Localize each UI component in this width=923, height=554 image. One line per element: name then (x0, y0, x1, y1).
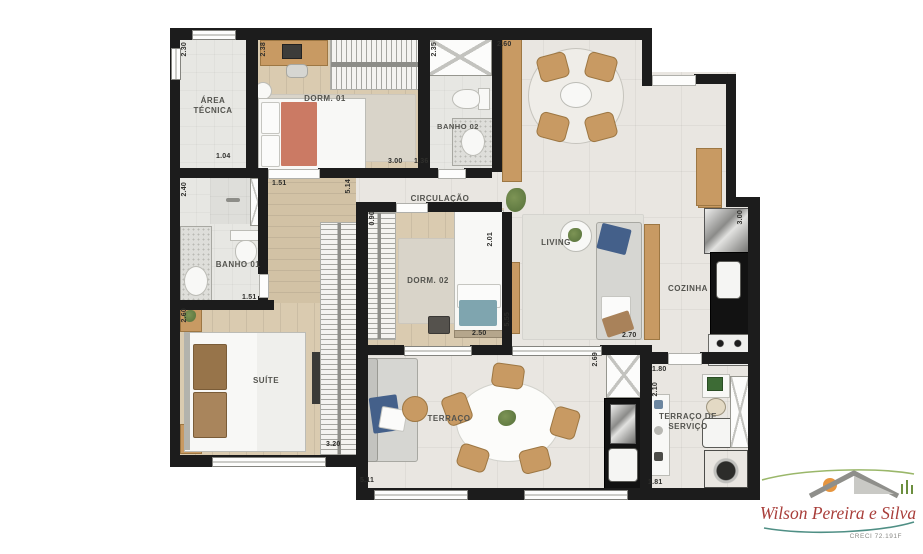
wall-cozinha-servico-a (640, 352, 668, 364)
broker-logo: Wilson Pereira e Silva CRECI 72.191F (756, 456, 920, 552)
slider-terraco-icon (524, 490, 628, 500)
dim-suite-w: 3.20 (326, 441, 340, 448)
wall-top (170, 28, 652, 40)
wardrobe-suite-icon (320, 222, 358, 456)
window-icon (192, 30, 236, 40)
dining-platter-icon (560, 82, 592, 108)
wall-banho02-bottom-a (430, 168, 438, 178)
label-banho02: BANHO 02 (424, 122, 492, 132)
service-door-icon (730, 376, 750, 448)
dim-banho02-w: 1.36 (414, 158, 428, 165)
dim-dining-w: 2.60 (497, 41, 511, 48)
label-banho01: BANHO 01 (196, 260, 280, 270)
wall-dorm02-bottom-b (470, 345, 502, 355)
door-banho01-icon (259, 274, 269, 298)
wall-living-bottom-a (502, 345, 512, 355)
terrace-chair-icon (490, 362, 525, 390)
door-servico-icon (668, 353, 702, 365)
label-dorm01: DORM. 01 (290, 94, 360, 104)
pillow-icon (261, 135, 280, 167)
side-table-dorm02-icon (428, 316, 450, 334)
dim-suite-h: 2.60 (181, 308, 188, 322)
dim-dorm01-w: 3.00 (388, 158, 402, 165)
laptop-icon (282, 44, 302, 59)
dim-servico-h: 2.10 (652, 382, 659, 396)
dim-area-tecnica-h: 2.30 (181, 42, 188, 56)
dim-dorm02-w: 2.50 (472, 330, 486, 337)
sink-banho01-icon (184, 266, 208, 296)
entry-door-icon (652, 75, 696, 86)
kitchen-sink-icon (716, 261, 741, 299)
terrace-cabinet-icon (606, 352, 642, 398)
logo-bottom-wave (764, 522, 914, 532)
wall-dorm01-banho02 (418, 28, 430, 168)
sink-banho02-icon (461, 128, 485, 156)
dim-terraco-w: 5.11 (360, 477, 374, 484)
dim-banho02-h: 2.35 (431, 42, 438, 56)
broker-creci: CRECI 72.191F (850, 533, 902, 540)
wall-right-upper (726, 74, 736, 207)
dim-living-w: 2.70 (622, 332, 636, 339)
terrace-sink-icon (608, 448, 638, 482)
broker-logo-graphic: Wilson Pereira e Silva CRECI 72.191F (756, 456, 920, 552)
dim-area-tecnica-w: 1.04 (216, 153, 230, 160)
wall-terraco-servico (640, 355, 652, 488)
trees-icon (902, 480, 912, 494)
dining-cabinet-icon (502, 38, 522, 182)
label-terraco-servico: TERRAÇO DE SERVIÇO (658, 412, 718, 433)
label-living: LIVING (528, 238, 584, 248)
shelf-item-icon (654, 400, 663, 409)
kitchen-cabinet-icon (696, 148, 722, 206)
slider-dorm02-terraco-icon (404, 346, 472, 356)
wall-dorm02-top-a (356, 202, 396, 212)
dim-dorm01-h: 2.38 (260, 42, 267, 56)
dim-banho01-w: 1.51 (242, 294, 256, 301)
label-area-tecnica: ÁREA TÉCNICA (184, 96, 242, 117)
door-dorm01-icon (268, 169, 320, 179)
window-icon (171, 48, 181, 80)
shelf-item-icon (654, 452, 663, 461)
green-box-icon (707, 377, 723, 391)
pillow-icon (261, 102, 280, 134)
desk-chair-icon (286, 64, 308, 78)
dim-banho01-h: 2.40 (181, 182, 188, 196)
cutout-right (736, 28, 923, 205)
pillow-teal-icon (459, 300, 497, 326)
blanket-coral-icon (281, 102, 317, 166)
wall-circulation-top-right (318, 168, 430, 178)
pillow-brown-icon (193, 344, 227, 390)
dim-servico-w-bottom: 1.81 (648, 479, 662, 486)
console-sofa-icon (644, 224, 660, 340)
wall-areatecnica-dorm01 (246, 28, 258, 168)
grill-icon (610, 404, 636, 444)
label-cozinha: COZINHA (658, 284, 718, 294)
wardrobe-dorm01-icon (330, 38, 422, 90)
wall-entry-step (642, 28, 652, 86)
label-circulacao: CIRCULAÇÃO (394, 194, 486, 204)
broker-name: Wilson Pereira e Silva (760, 503, 917, 523)
tv-rack-icon (312, 352, 320, 404)
wall-circulation-top-left (170, 168, 268, 178)
dim-living-h: 5.55 (504, 312, 511, 326)
door-banho02-icon (438, 169, 466, 179)
logo-top-wave (762, 470, 914, 480)
pillow-brown-icon (193, 392, 227, 438)
label-suite: SUÍTE (238, 376, 294, 386)
slider-terraco-icon (374, 490, 468, 500)
wall-hall-right (356, 212, 368, 500)
wall-left (170, 28, 180, 467)
toilet-bowl-icon (452, 89, 480, 109)
wall-banho02-right (492, 28, 502, 172)
label-terraco: TERRAÇO (418, 414, 480, 424)
wall-dorm02-bottom-a (368, 345, 404, 355)
window-suite-icon (212, 457, 326, 467)
floorplan-canvas: ÁREA TÉCNICA DORM. 01 BANHO 02 CIRCULAÇÃ… (0, 0, 923, 554)
cutout-bottom-left (160, 467, 356, 554)
dim-servico-w-top: 1.80 (652, 366, 666, 373)
dim-circ-w: 0.90 (369, 211, 376, 225)
washer-icon (704, 450, 748, 488)
door-dorm02-icon (396, 203, 428, 213)
dim-hall-w-top: 1.51 (272, 180, 286, 187)
dim-dorm02-h: 2.01 (487, 232, 494, 246)
headboard-suite-icon (184, 332, 190, 450)
slider-living-terraco-icon (512, 346, 602, 356)
dim-cozinha-h: 3.00 (737, 210, 744, 224)
dim-terraco-h: 2.69 (592, 352, 599, 366)
dim-hall-len: 5.14 (345, 179, 352, 193)
wall-banho02-bottom-b (464, 168, 492, 178)
label-dorm02: DORM. 02 (392, 276, 464, 286)
shower-head-icon (226, 198, 240, 202)
wall-cozinha-servico-b (700, 352, 760, 364)
